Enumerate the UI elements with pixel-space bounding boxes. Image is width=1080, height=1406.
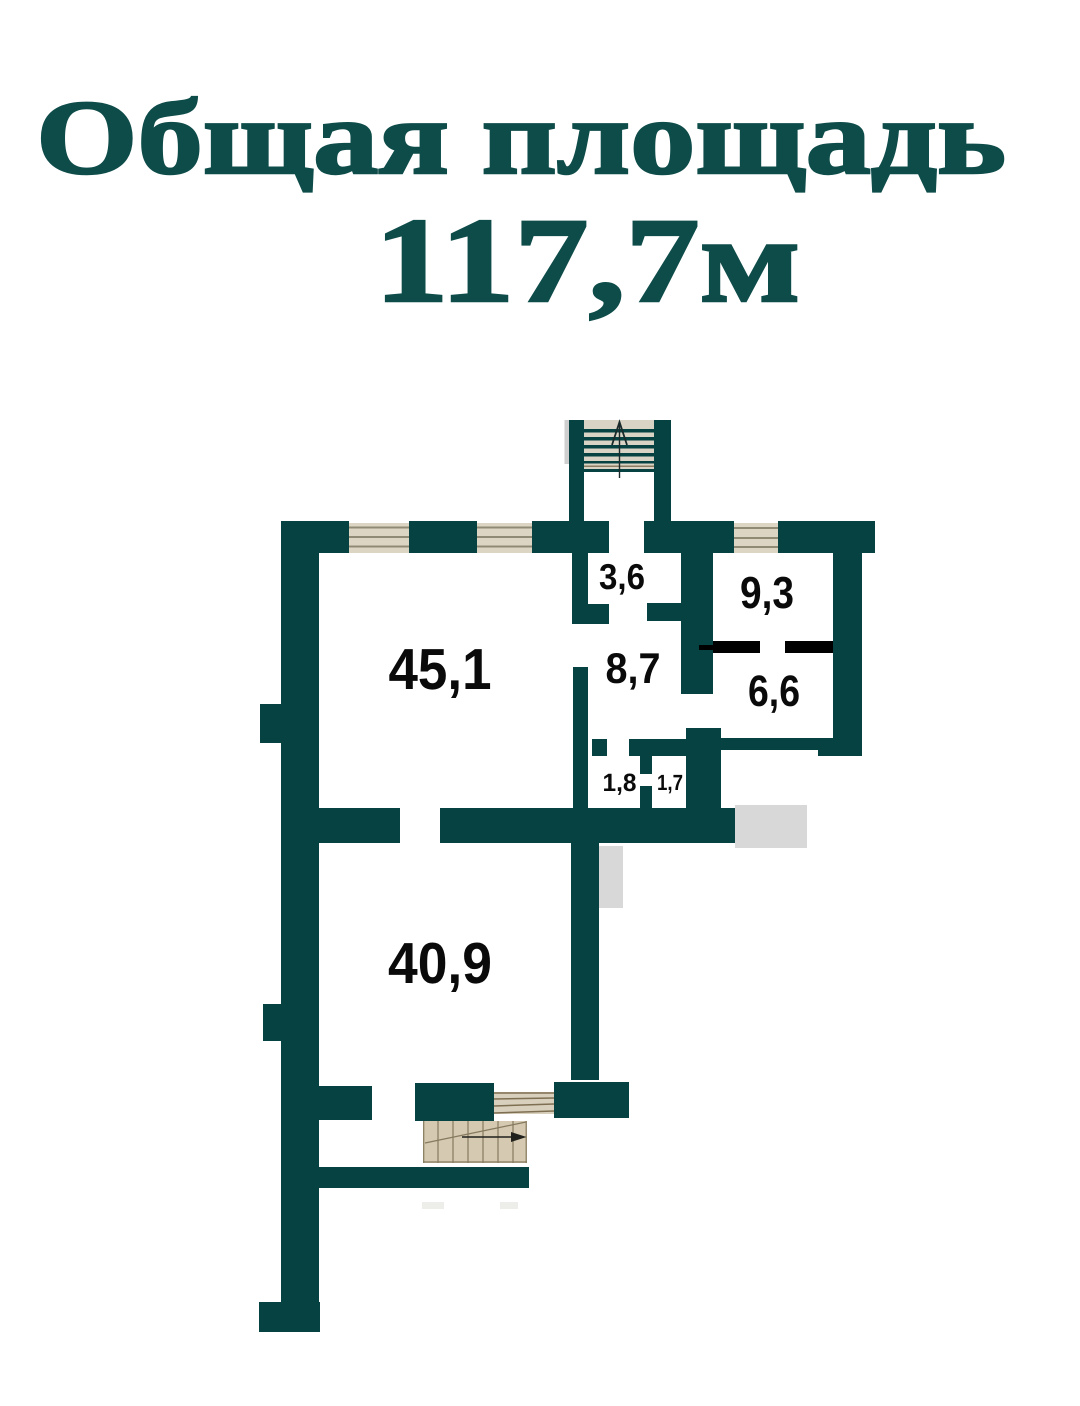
- svg-text:3,6: 3,6: [599, 556, 645, 597]
- svg-text:1,8: 1,8: [603, 769, 637, 797]
- svg-text:8,7: 8,7: [606, 645, 661, 693]
- svg-text:Общая площадь: Общая площадь: [36, 79, 1006, 196]
- svg-text:40,9: 40,9: [388, 931, 492, 996]
- svg-text:45,1: 45,1: [389, 637, 492, 702]
- svg-text:117,7м: 117,7м: [375, 194, 801, 328]
- svg-text:1,7: 1,7: [657, 770, 683, 795]
- svg-text:9,3: 9,3: [740, 567, 794, 618]
- svg-text:6,6: 6,6: [748, 667, 800, 716]
